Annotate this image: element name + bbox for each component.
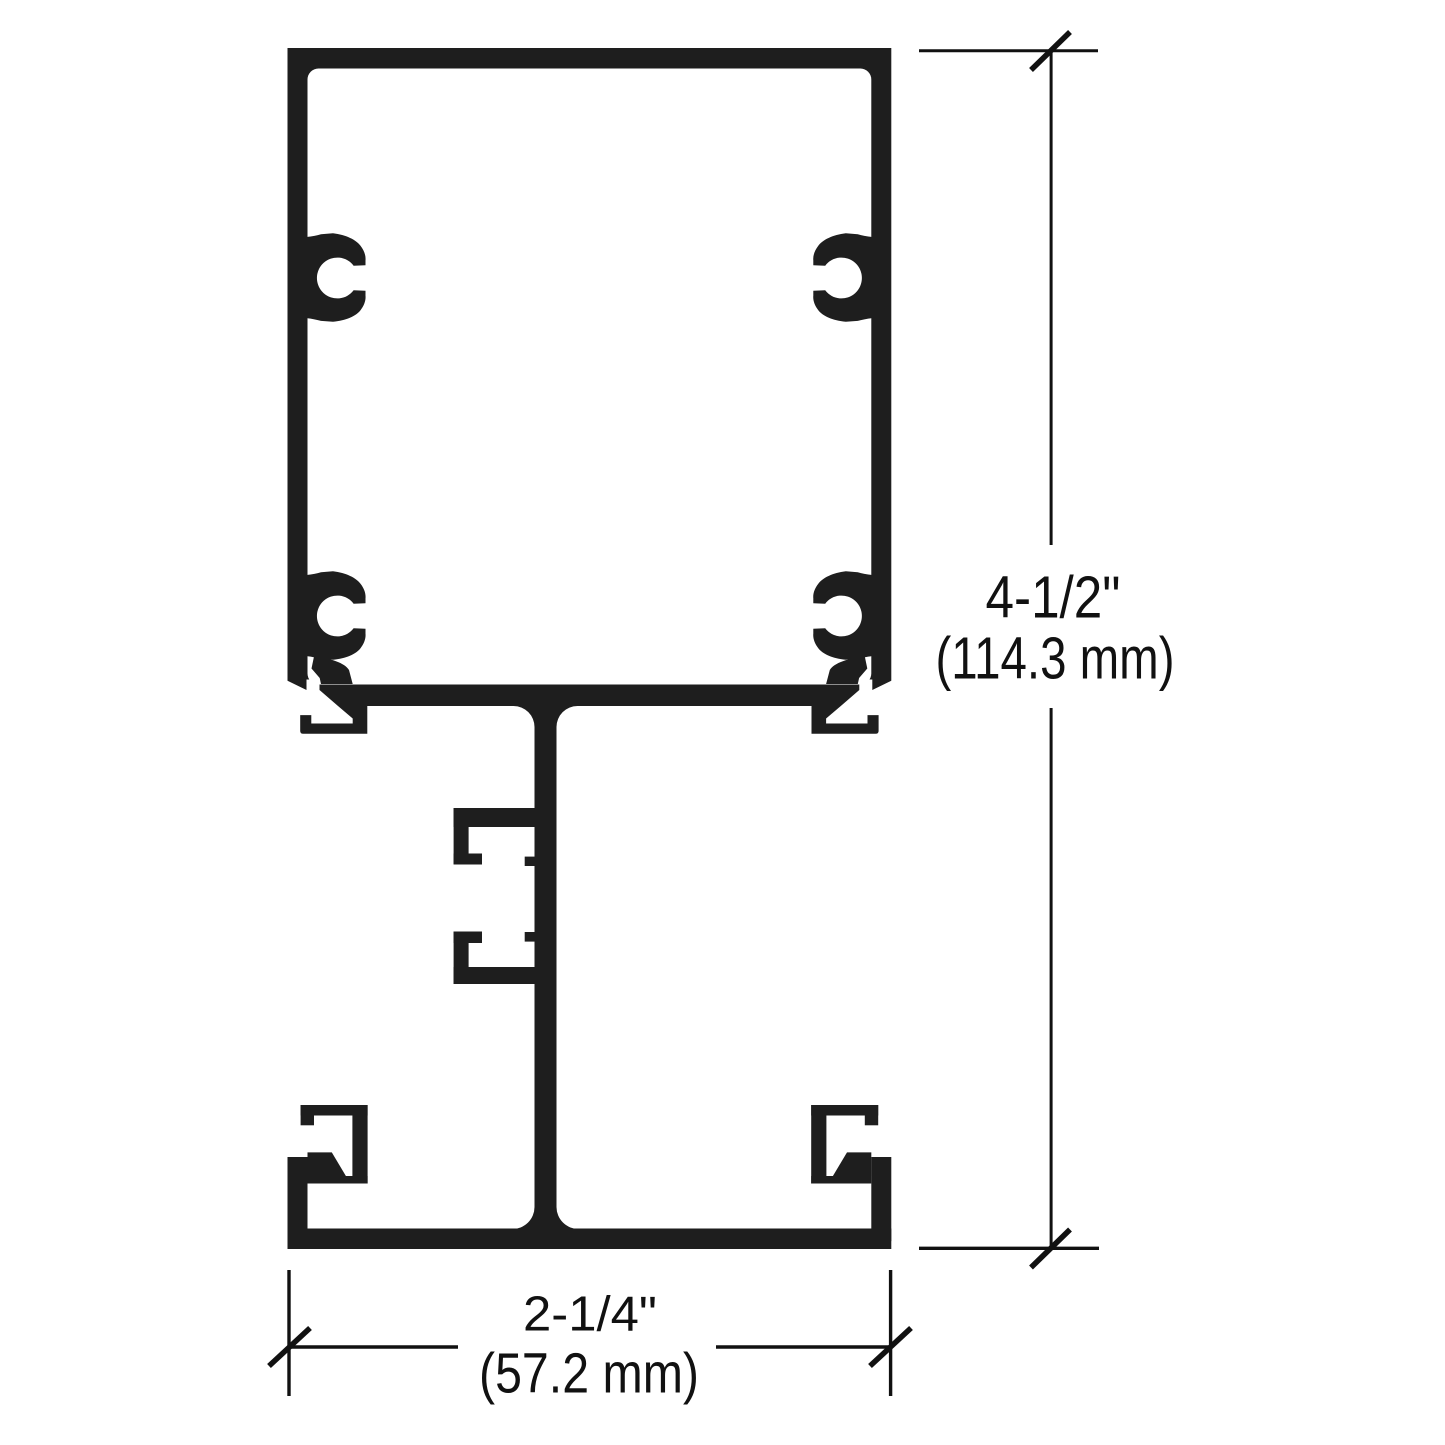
svg-text:(114.3 mm): (114.3 mm) (936, 626, 1175, 692)
svg-text:2-1/4": 2-1/4" (523, 1287, 657, 1341)
svg-text:(57.2 mm): (57.2 mm) (479, 1341, 699, 1404)
svg-text:4-1/2": 4-1/2" (986, 565, 1121, 631)
